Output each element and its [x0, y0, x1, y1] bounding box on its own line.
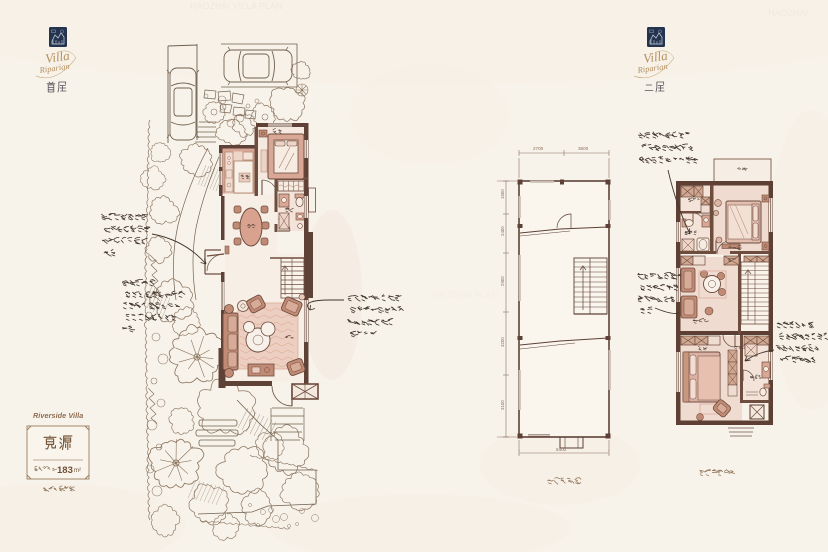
svg-text:HAOZHAI VILLA PLAN: HAOZHAI VILLA PLAN [190, 1, 283, 11]
svg-text:HAOZHAI PLAN: HAOZHAI PLAN [432, 290, 498, 300]
svg-text:1500: 1500 [500, 189, 505, 199]
svg-text:3100: 3100 [500, 400, 505, 410]
svg-text:2700: 2700 [533, 146, 544, 151]
svg-text:2400: 2400 [500, 226, 505, 236]
svg-text:3200: 3200 [500, 337, 505, 347]
svg-text:HAOZHAI: HAOZHAI [768, 8, 808, 18]
svg-text:3600: 3600 [578, 146, 589, 151]
svg-text:Riverside Villa: Riverside Villa [33, 411, 83, 420]
svg-text:6400: 6400 [556, 447, 567, 452]
svg-text:183: 183 [57, 465, 73, 476]
svg-text:2900: 2900 [500, 276, 505, 286]
svg-text:m²: m² [74, 468, 81, 474]
